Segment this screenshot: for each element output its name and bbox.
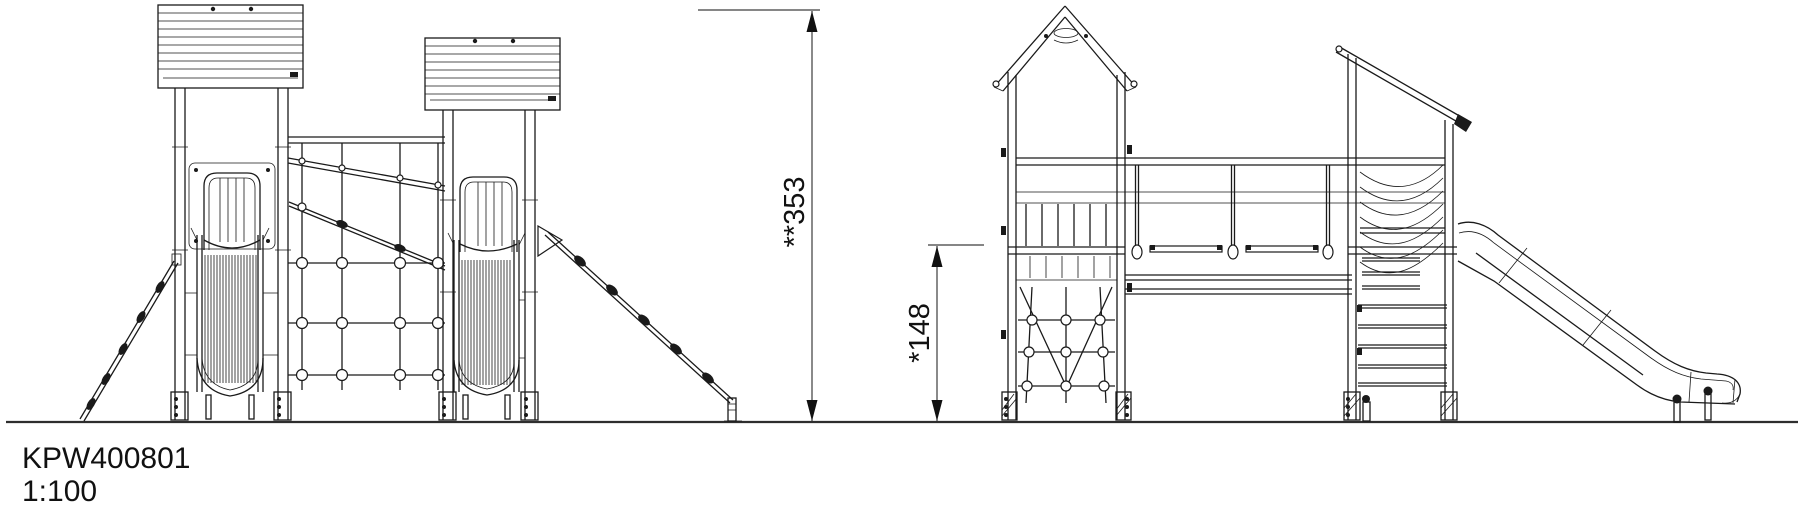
climbing-net <box>288 137 445 390</box>
tower-c-railing <box>1008 204 1125 280</box>
tower-d-ladder-rungs <box>1358 305 1447 386</box>
rope-ladder-right <box>538 226 742 421</box>
slide-side-view <box>1458 222 1740 422</box>
tower-d-cargo-net <box>1360 165 1443 289</box>
dimension-total-height: **353 <box>698 10 820 421</box>
technical-drawing-page: **353 *148 <box>0 0 1807 506</box>
tower-d-posts <box>1344 54 1457 421</box>
product-code-label: KPW400801 <box>22 442 190 475</box>
tower-a-slide-front <box>191 173 269 419</box>
climbing-rope-left <box>80 254 181 421</box>
tower-c-aframe-roof <box>993 6 1137 91</box>
arrow-down-icon <box>807 400 818 421</box>
arrow-down-icon <box>932 400 943 421</box>
dimension-platform-height-label: *148 <box>904 303 936 363</box>
scale-label: 1:100 <box>22 475 97 506</box>
tower-b-slide-front <box>448 177 525 419</box>
tower-a-posts <box>171 88 291 420</box>
tower-c-net <box>1018 287 1115 403</box>
tower-b-roof <box>425 38 560 110</box>
side-elevation-view <box>993 6 1740 422</box>
suspension-bridge <box>1016 158 1445 294</box>
front-elevation-view <box>80 5 742 421</box>
arrow-up-icon <box>932 246 943 267</box>
tower-a-roof <box>158 5 303 88</box>
dimension-platform-height: *148 <box>904 245 984 421</box>
arrow-up-icon <box>807 11 818 32</box>
dimension-total-height-label: **353 <box>779 177 811 248</box>
drawing-canvas: **353 *148 <box>0 0 1807 506</box>
